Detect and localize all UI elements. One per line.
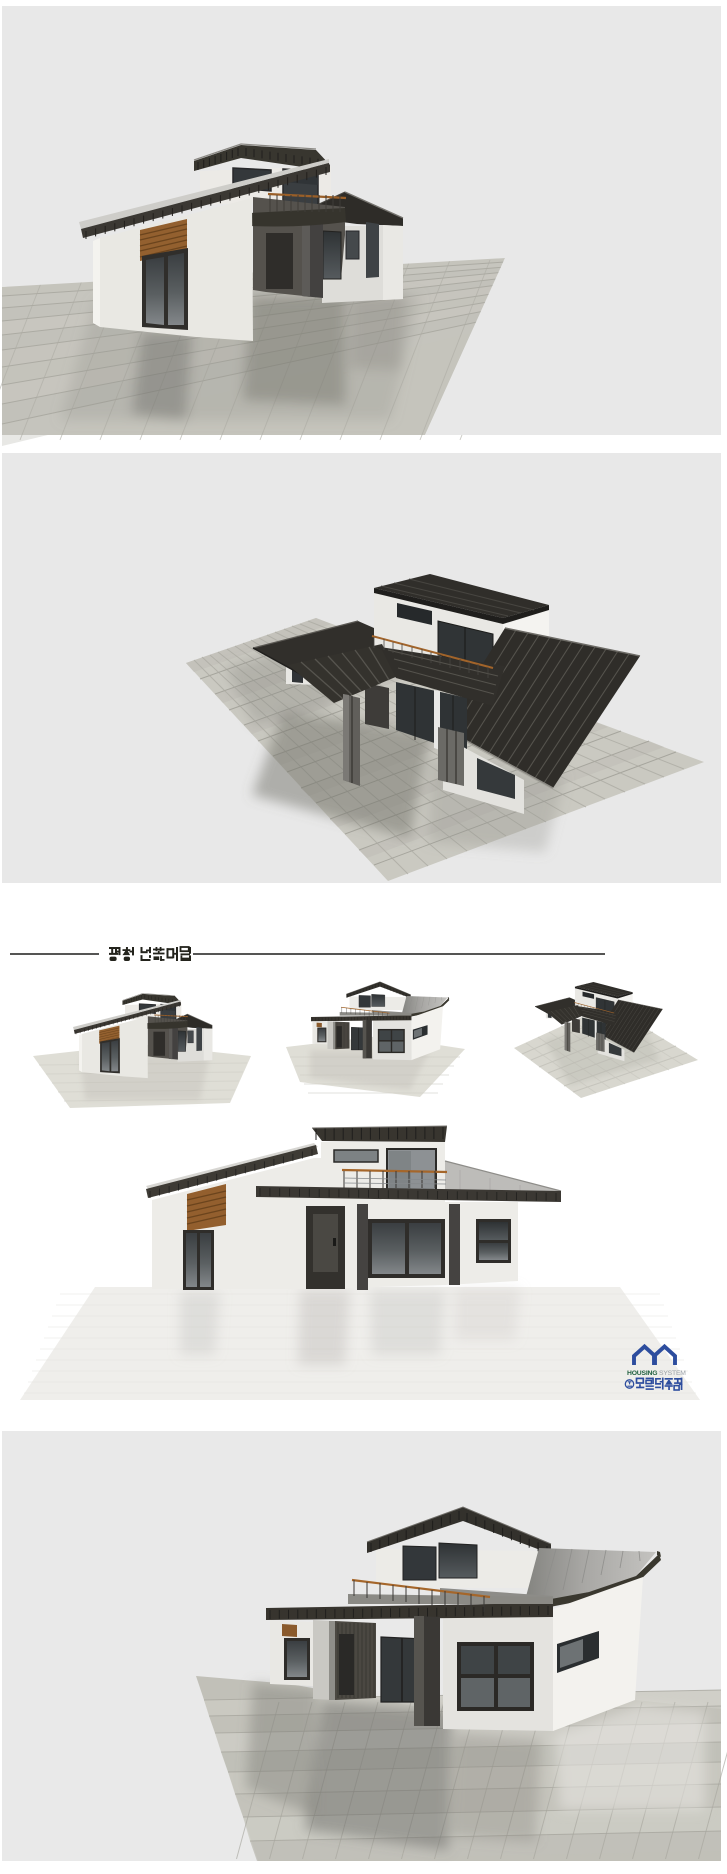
svg-text:HOUSING: HOUSING [627,1370,657,1377]
svg-text:SYSTEM: SYSTEM [659,1370,686,1377]
